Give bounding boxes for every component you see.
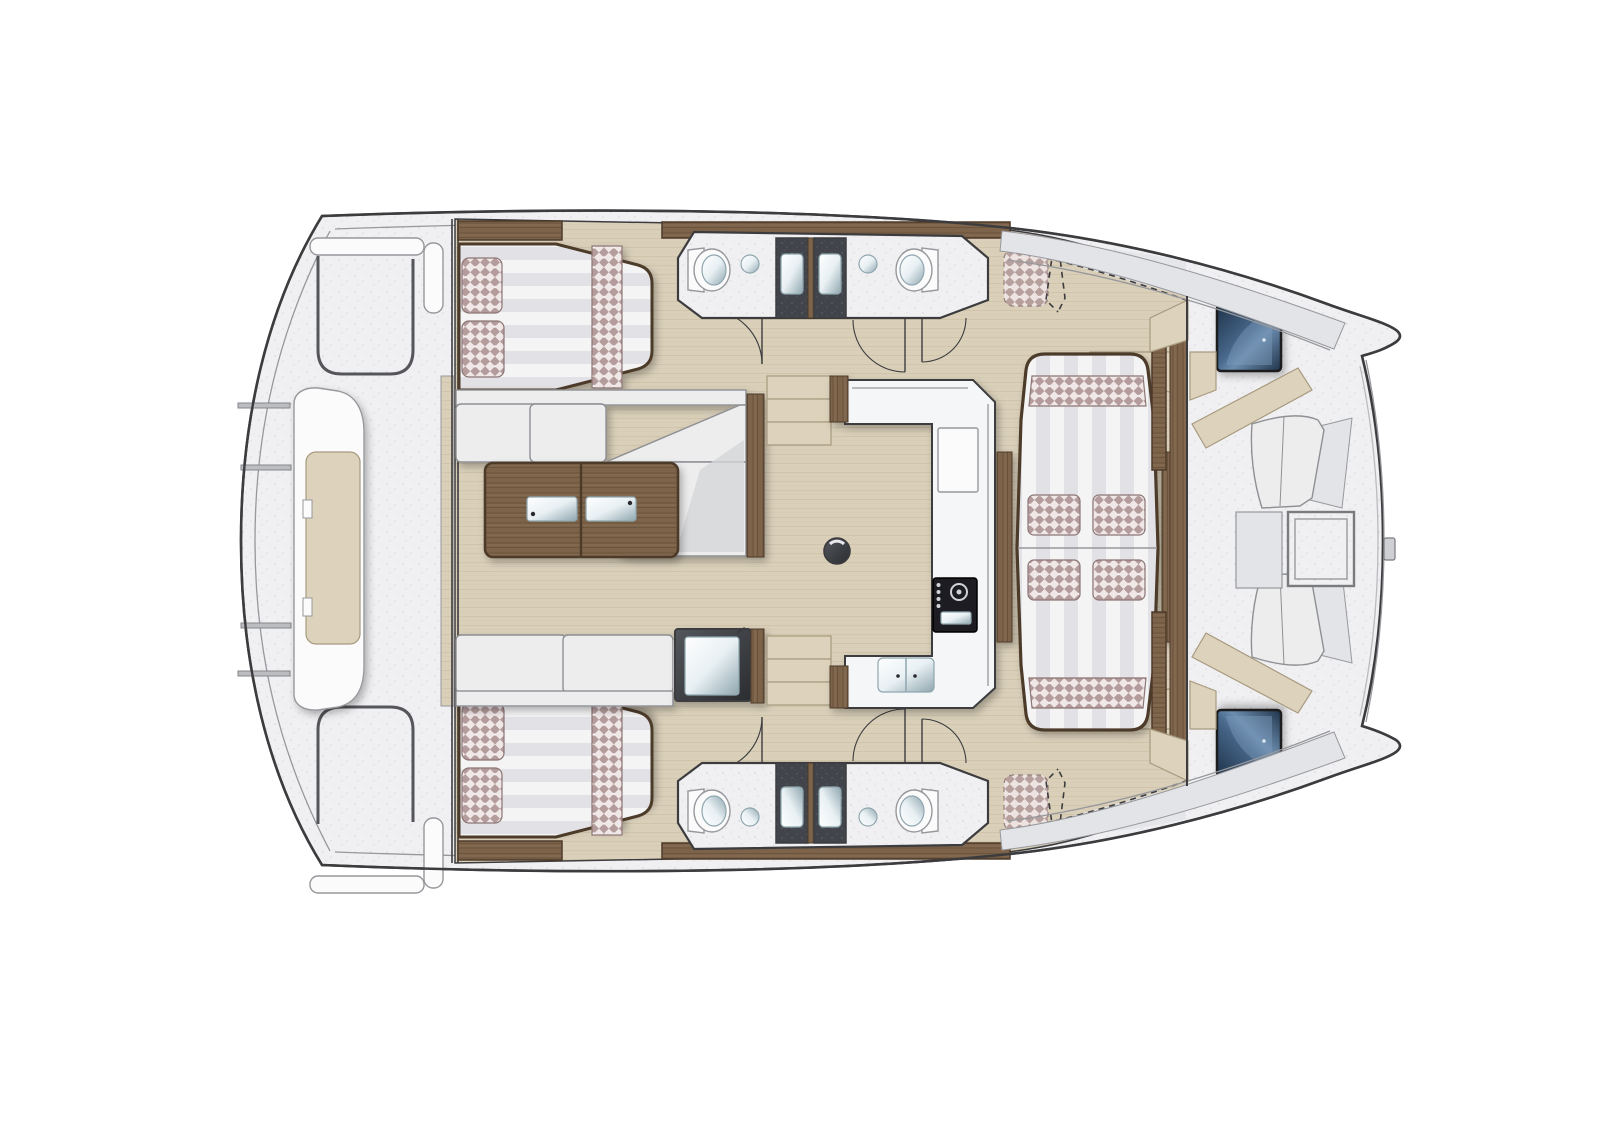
bow-table-hatch <box>1288 512 1354 586</box>
dinette-bolster <box>1029 678 1146 708</box>
sofa-side-board <box>747 394 764 557</box>
toilet <box>896 248 938 292</box>
table-inlay <box>527 497 577 521</box>
dinette-cushion <box>1093 560 1145 600</box>
dinette-cushion <box>1028 495 1080 535</box>
dinette-bolster <box>1029 376 1146 406</box>
toilet <box>688 248 730 292</box>
fridge-unit <box>675 628 764 703</box>
shower-tray <box>781 254 803 294</box>
aft-bench-cushion <box>306 452 360 644</box>
grab-rail <box>424 243 443 313</box>
bed-pillow <box>462 321 504 377</box>
crew-berth-pillow <box>1004 250 1048 306</box>
mast-foot <box>824 538 850 564</box>
transom-step <box>310 238 424 255</box>
wardrobe-cabinet <box>458 221 562 240</box>
steps-port <box>767 376 831 445</box>
bed-pillow <box>462 258 502 313</box>
galley-end-cabinet <box>830 666 848 708</box>
steps-starboard <box>767 636 831 705</box>
coffee-table <box>485 463 678 557</box>
dinette-side-board <box>997 452 1012 642</box>
stove <box>933 578 977 632</box>
transom-step <box>310 876 424 893</box>
port-aft-cabin-bed <box>459 244 652 390</box>
bed-runner <box>592 246 622 388</box>
bow-seat-cushion <box>1251 416 1324 508</box>
washbasin <box>859 255 877 273</box>
grab-rail <box>424 818 443 888</box>
dinette-lounge <box>997 354 1177 730</box>
washbasin <box>741 255 759 273</box>
catamaran-floorplan <box>0 0 1600 1131</box>
salon-bench-sofa <box>456 635 710 706</box>
dinette-cushion <box>1028 560 1080 600</box>
bow-cleat <box>1384 538 1395 560</box>
floorplan-canvas <box>0 0 1600 1131</box>
galley-end-cabinet <box>830 376 848 422</box>
dinette-cushion <box>1093 495 1145 535</box>
bow-console <box>1236 512 1282 588</box>
shower-tray <box>819 254 841 294</box>
aft-bench <box>294 388 364 710</box>
table-inlay <box>586 497 636 521</box>
galley-sink <box>878 658 934 692</box>
shower-divider <box>808 238 814 318</box>
counter-module <box>938 428 978 492</box>
